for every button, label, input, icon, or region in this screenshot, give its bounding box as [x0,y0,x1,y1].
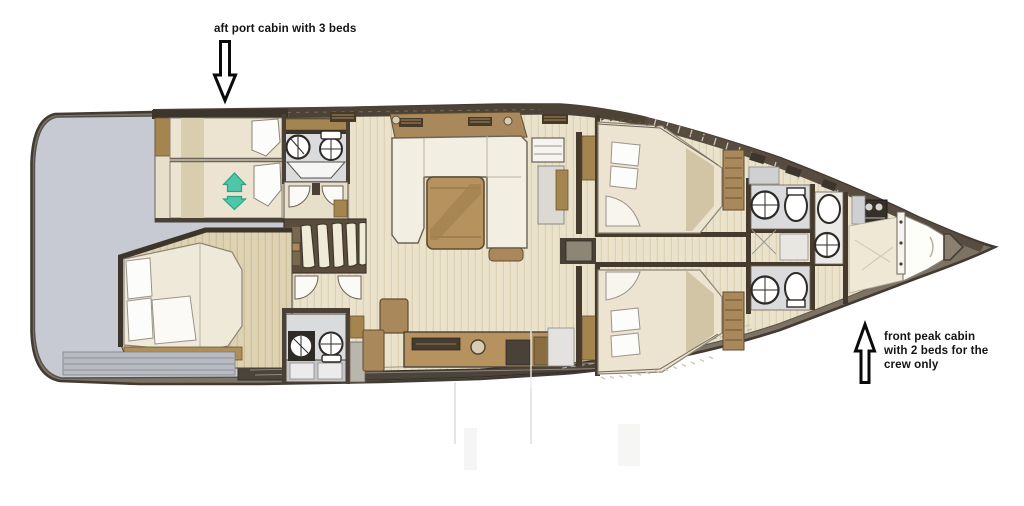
svg-text:aft port cabin with 3 beds: aft port cabin with 3 beds [214,22,356,35]
svg-text:with 2 beds for the: with 2 beds for the [883,344,989,357]
svg-text:front peak cabin: front peak cabin [884,330,975,343]
svg-text:crew only: crew only [884,358,939,371]
